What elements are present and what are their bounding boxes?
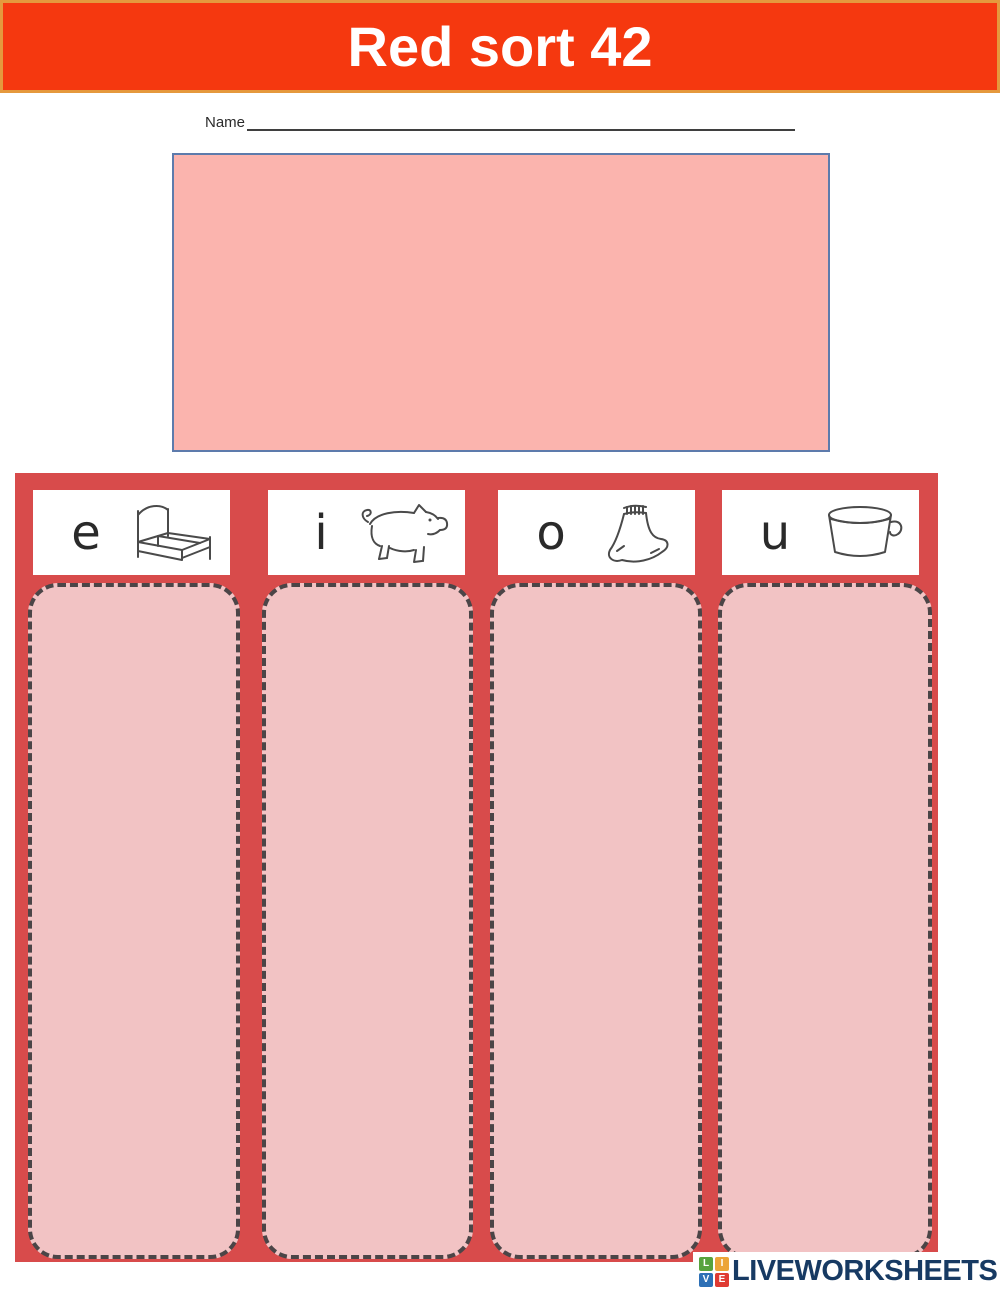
header-card-e: e xyxy=(33,490,230,575)
name-row: Name xyxy=(205,114,795,131)
header-letter-u: u xyxy=(752,505,798,561)
header-letter-i: i xyxy=(298,505,344,561)
liveworksheets-logo: L I V E LIVEWORKSHEETS xyxy=(693,1252,1000,1291)
name-label: Name xyxy=(205,114,245,131)
liveworksheets-logo-text: LIVEWORKSHEETS xyxy=(732,1255,997,1288)
word-bank-box[interactable] xyxy=(172,153,830,452)
sort-board: e i xyxy=(15,473,938,1262)
sort-column-o[interactable] xyxy=(490,583,702,1259)
header-card-u: u xyxy=(722,490,919,575)
name-blank-line[interactable] xyxy=(247,115,795,131)
logo-square-i: I xyxy=(715,1257,729,1271)
cup-icon xyxy=(821,502,905,564)
worksheet-page: Red sort 42 Name e xyxy=(0,0,1000,1291)
header-card-i: i xyxy=(268,490,465,575)
bed-icon xyxy=(124,500,216,566)
logo-square-e: E xyxy=(715,1273,729,1287)
header-letter-o: o xyxy=(528,505,574,561)
logo-square-l: L xyxy=(699,1257,713,1271)
sock-icon xyxy=(599,500,681,566)
liveworksheets-logo-grid: L I V E xyxy=(699,1257,729,1287)
page-title: Red sort 42 xyxy=(348,14,653,79)
sort-column-i[interactable] xyxy=(262,583,473,1259)
pig-icon xyxy=(356,500,451,566)
header-card-o: o xyxy=(498,490,695,575)
title-banner: Red sort 42 xyxy=(0,0,1000,93)
sort-column-e[interactable] xyxy=(28,583,240,1259)
logo-square-v: V xyxy=(699,1273,713,1287)
header-letter-e: e xyxy=(63,505,109,561)
sort-column-u[interactable] xyxy=(718,583,932,1259)
